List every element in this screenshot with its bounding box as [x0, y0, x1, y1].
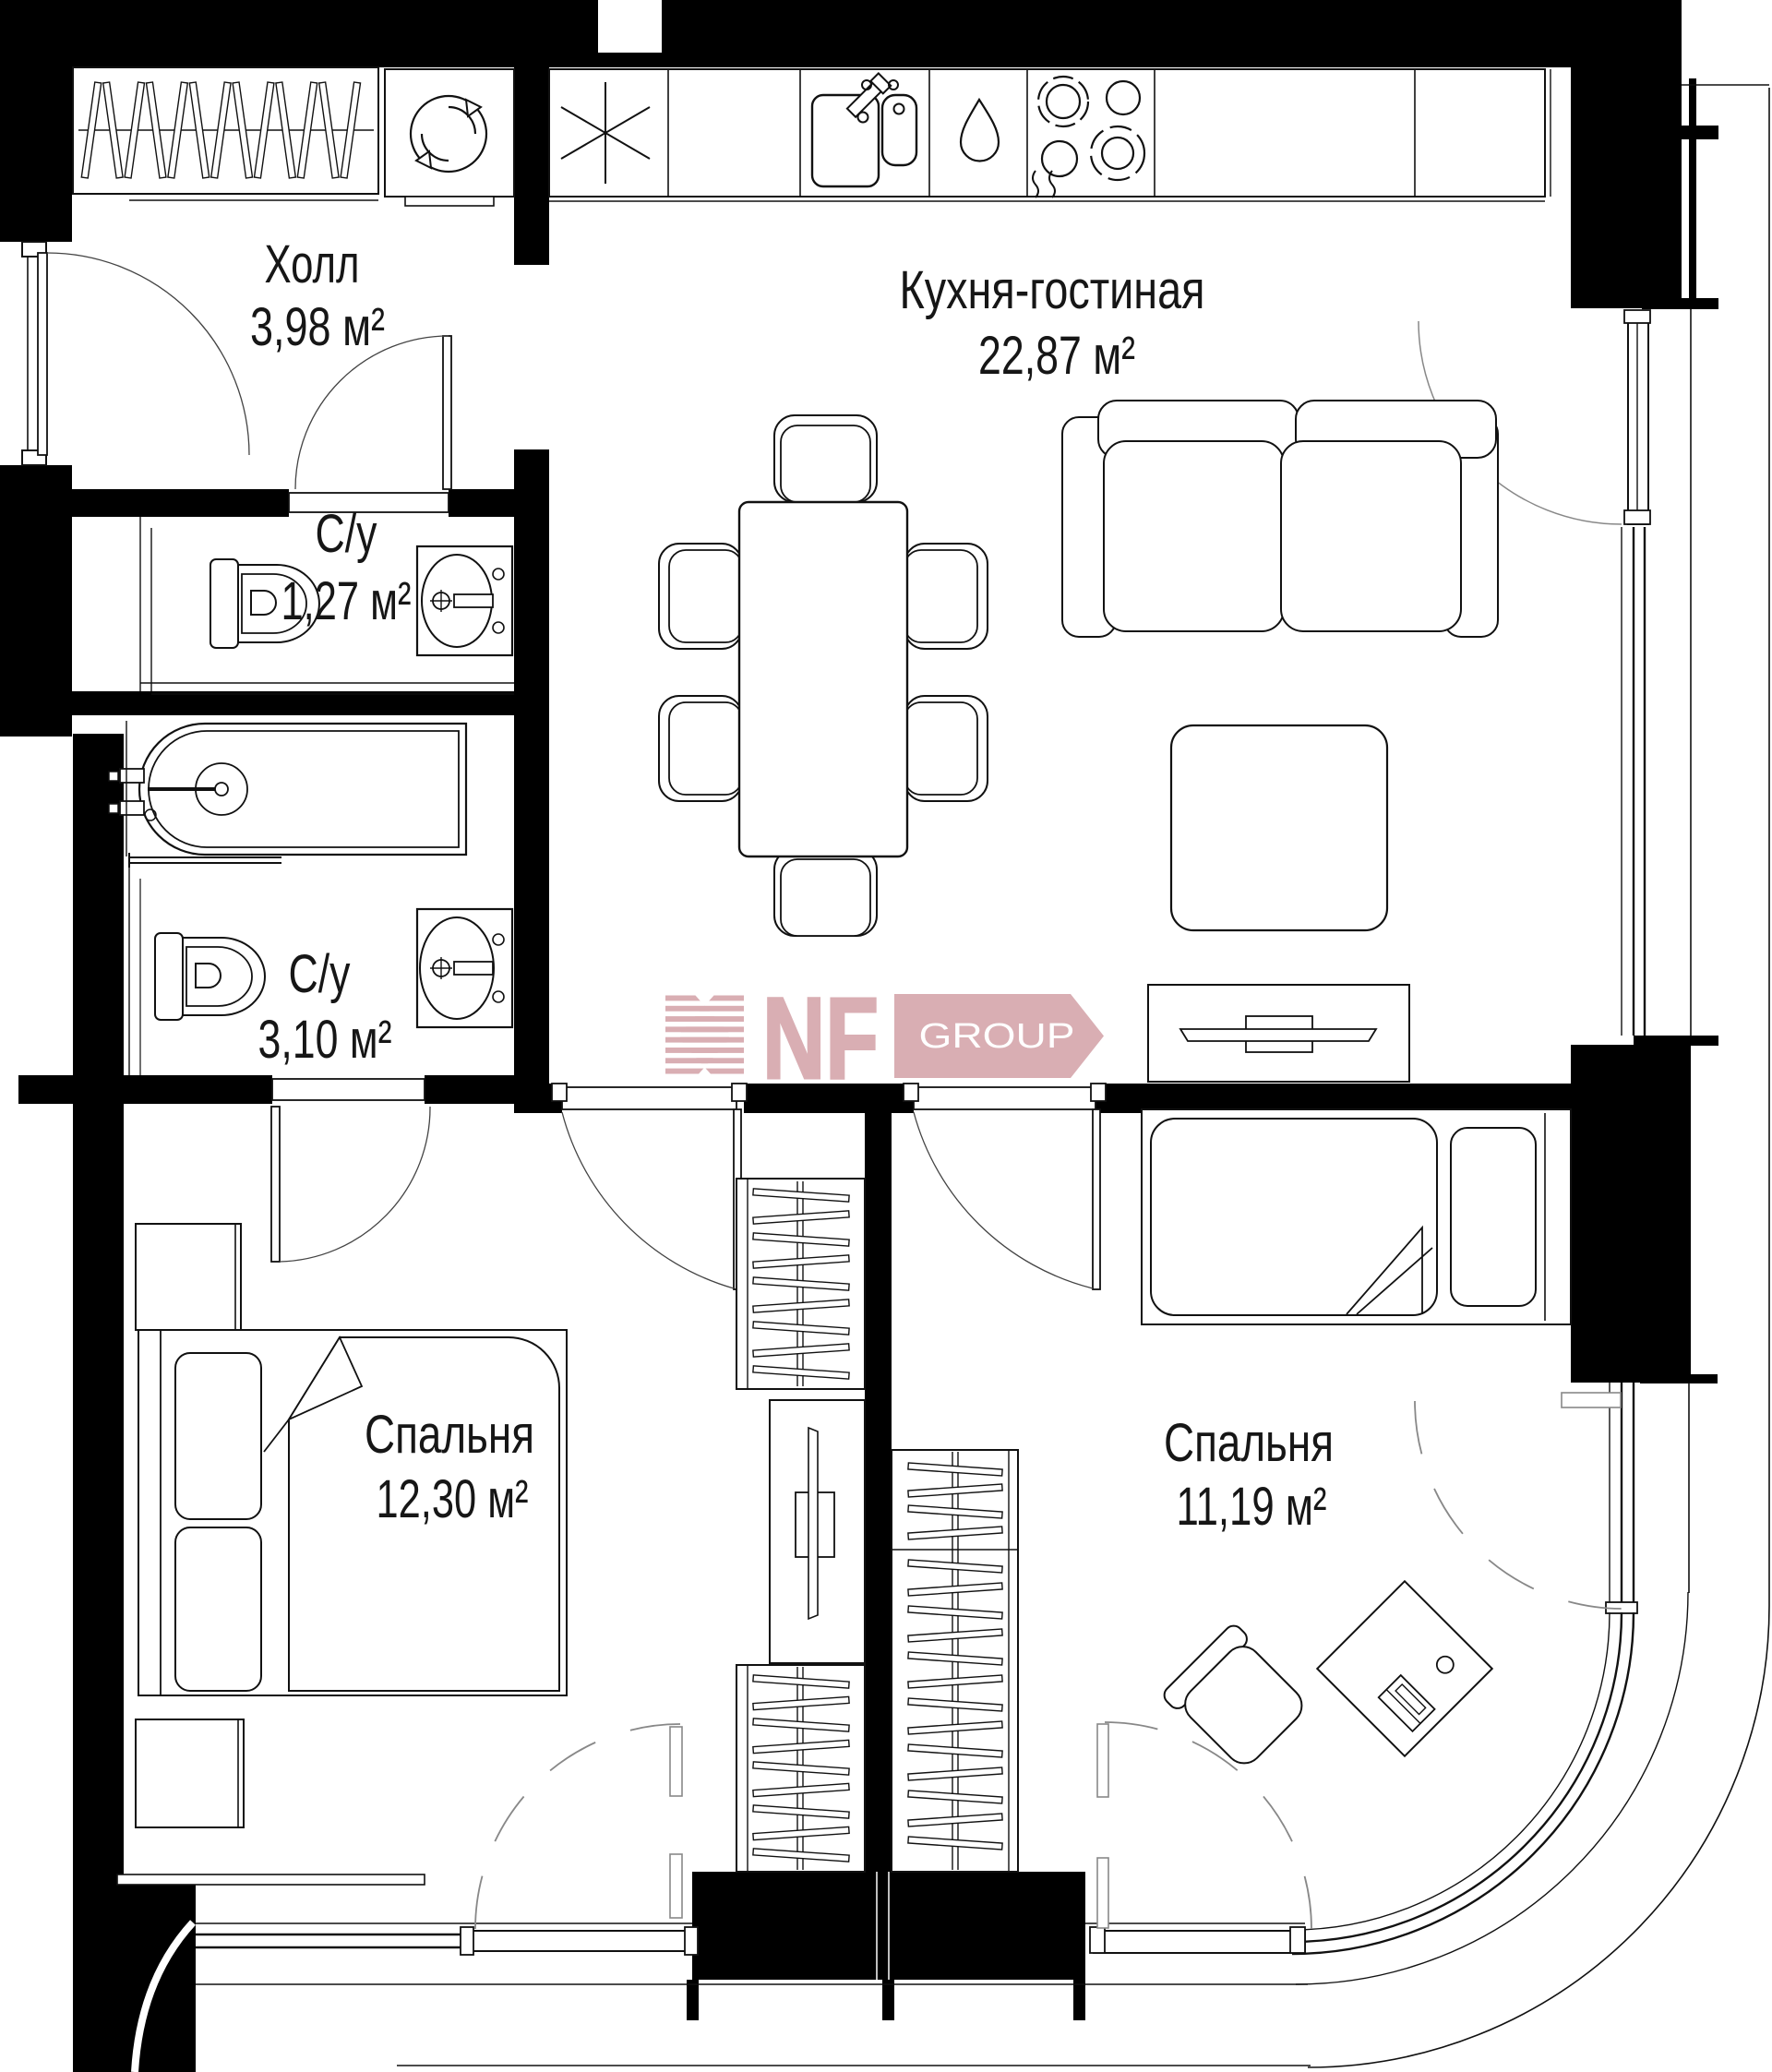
svg-text:3,98 м²: 3,98 м²: [250, 297, 385, 357]
svg-text:22,87 м²: 22,87 м²: [978, 326, 1135, 386]
svg-text:NF: NF: [762, 975, 879, 1103]
svg-text:Холл: Холл: [265, 234, 360, 294]
svg-text:11,19 м²: 11,19 м²: [1177, 1477, 1327, 1537]
svg-text:3,10 м²: 3,10 м²: [258, 1010, 392, 1070]
svg-text:Спальня: Спальня: [1164, 1413, 1334, 1473]
svg-text:С/у: С/у: [289, 944, 351, 1004]
svg-text:GROUP: GROUP: [919, 1017, 1075, 1056]
svg-text:12,30 м²: 12,30 м²: [377, 1469, 529, 1529]
svg-text:Спальня: Спальня: [365, 1405, 534, 1465]
svg-text:Кухня-гостиная: Кухня-гостиная: [900, 260, 1205, 320]
svg-text:1,27 м²: 1,27 м²: [281, 571, 412, 631]
svg-text:С/у: С/у: [316, 504, 377, 564]
